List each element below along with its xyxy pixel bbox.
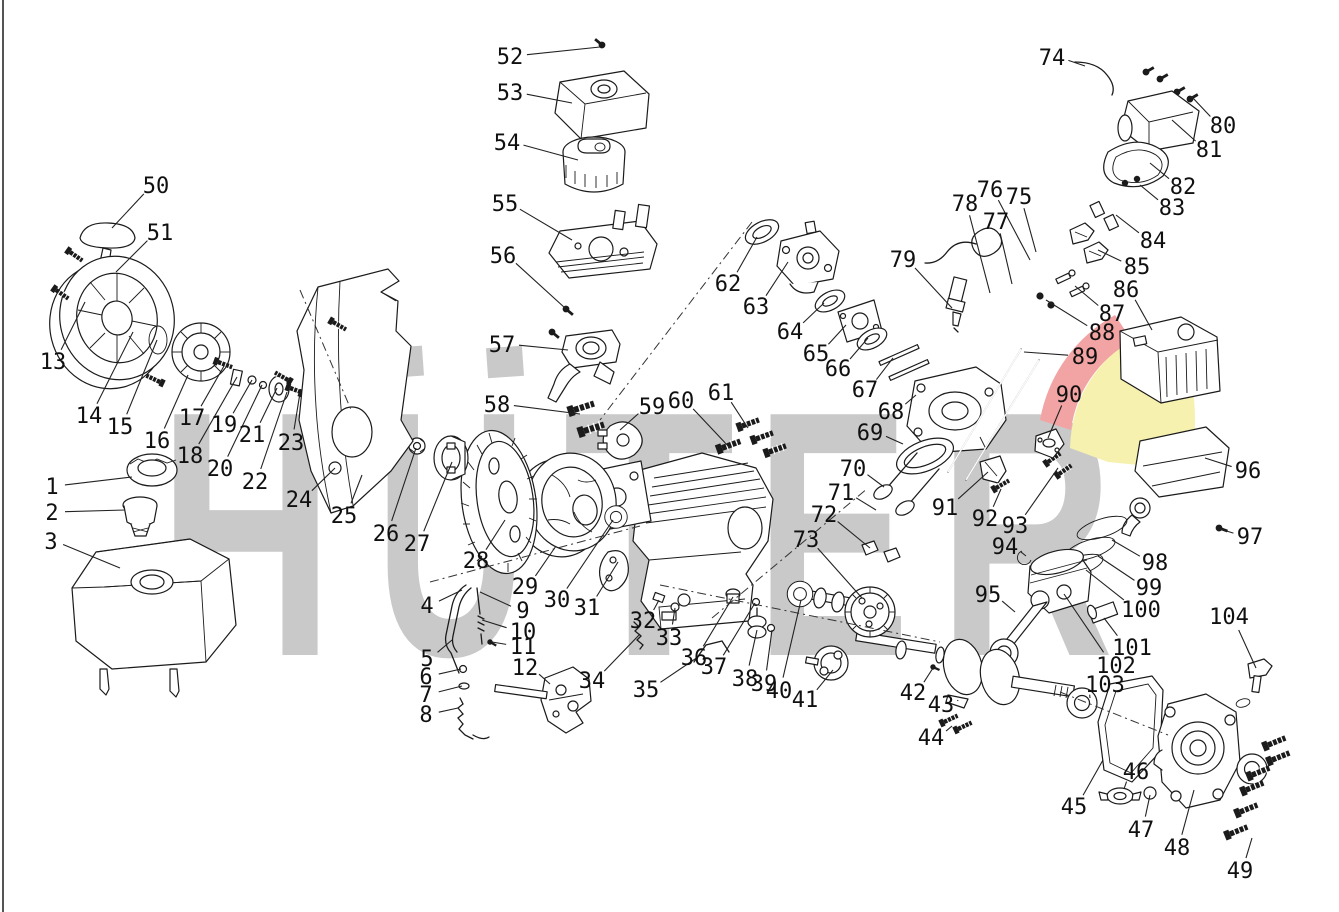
callout-27: 27 bbox=[404, 532, 431, 557]
part-crankcase-cover bbox=[1154, 694, 1240, 808]
callout-59: 59 bbox=[639, 395, 666, 420]
part-rocker-arms bbox=[1070, 223, 1108, 263]
callout-35: 35 bbox=[633, 678, 660, 703]
callout-16: 16 bbox=[144, 429, 171, 454]
callout-100: 100 bbox=[1121, 598, 1161, 623]
callout-18: 18 bbox=[177, 444, 204, 469]
leader-line-75 bbox=[1024, 208, 1036, 252]
callout-52: 52 bbox=[497, 45, 524, 70]
callout-43: 43 bbox=[928, 693, 955, 718]
callout-74: 74 bbox=[1039, 46, 1066, 71]
part-air-filter-base bbox=[549, 204, 657, 278]
leader-line-1 bbox=[65, 477, 132, 485]
part-fuel-strainer bbox=[123, 497, 157, 536]
callout-19: 19 bbox=[211, 413, 238, 438]
callout-22: 22 bbox=[242, 470, 269, 495]
callout-26: 26 bbox=[373, 522, 400, 547]
callout-61: 61 bbox=[708, 381, 735, 406]
callout-40: 40 bbox=[766, 679, 793, 704]
leader-line-98 bbox=[1112, 540, 1140, 556]
leader-line-83 bbox=[1140, 185, 1158, 200]
callout-48: 48 bbox=[1164, 836, 1191, 861]
callout-55: 55 bbox=[492, 192, 519, 217]
callout-92: 92 bbox=[972, 507, 999, 532]
part-starter-pulley bbox=[172, 323, 230, 381]
part-carburetor bbox=[777, 221, 839, 293]
callout-103: 103 bbox=[1085, 673, 1125, 698]
callout-15: 15 bbox=[107, 415, 134, 440]
part-rocker-pivots bbox=[1056, 270, 1089, 297]
callout-75: 75 bbox=[1006, 185, 1033, 210]
callout-25: 25 bbox=[331, 504, 358, 529]
callout-96: 96 bbox=[1235, 459, 1262, 484]
callout-51: 51 bbox=[147, 221, 174, 246]
callout-88: 88 bbox=[1089, 321, 1116, 346]
callout-56: 56 bbox=[490, 244, 517, 269]
callout-37: 37 bbox=[701, 655, 728, 680]
callout-21: 21 bbox=[239, 423, 266, 448]
callout-8: 8 bbox=[419, 703, 432, 728]
leader-line-64 bbox=[803, 303, 824, 323]
callout-17: 17 bbox=[179, 406, 206, 431]
callout-47: 47 bbox=[1128, 818, 1155, 843]
callout-91: 91 bbox=[932, 496, 959, 521]
callout-58: 58 bbox=[484, 393, 511, 418]
callout-98: 98 bbox=[1142, 551, 1169, 576]
callout-76: 76 bbox=[977, 178, 1004, 203]
part-cylinder-head bbox=[907, 367, 1006, 453]
callout-41: 41 bbox=[792, 688, 819, 713]
leader-line-88 bbox=[1046, 300, 1087, 326]
callout-70: 70 bbox=[840, 457, 867, 482]
callout-1: 1 bbox=[45, 475, 58, 500]
part-carb-gasket bbox=[741, 215, 782, 250]
callout-2: 2 bbox=[45, 501, 58, 526]
callout-29: 29 bbox=[512, 575, 539, 600]
part-starter-cup bbox=[434, 436, 468, 480]
callout-97: 97 bbox=[1237, 525, 1264, 550]
callout-73: 73 bbox=[793, 528, 820, 553]
callout-80: 80 bbox=[1210, 114, 1237, 139]
callout-60: 60 bbox=[668, 389, 695, 414]
leader-line-52 bbox=[527, 47, 600, 55]
callout-24: 24 bbox=[286, 488, 313, 513]
callout-33: 33 bbox=[656, 626, 683, 651]
callout-94: 94 bbox=[992, 535, 1019, 560]
leader-line-79 bbox=[915, 268, 952, 308]
part-air-filter-cover bbox=[555, 71, 649, 139]
callout-89: 89 bbox=[1072, 345, 1099, 370]
leader-line-104 bbox=[1239, 630, 1256, 668]
callout-50: 50 bbox=[143, 174, 170, 199]
part-fuel-cap bbox=[127, 454, 177, 486]
callout-78: 78 bbox=[952, 192, 979, 217]
part-bearing bbox=[605, 506, 628, 529]
callout-84: 84 bbox=[1140, 229, 1167, 254]
callout-30: 30 bbox=[544, 588, 571, 613]
leader-line-55 bbox=[520, 209, 572, 240]
exploded-diagram: HUTER bbox=[0, 0, 1339, 912]
callout-44: 44 bbox=[918, 726, 945, 751]
callout-14: 14 bbox=[76, 404, 103, 429]
exploded-diagram-page: HUTER bbox=[0, 0, 1339, 912]
callout-28: 28 bbox=[463, 549, 490, 574]
callout-69: 69 bbox=[857, 421, 884, 446]
callout-20: 20 bbox=[207, 457, 234, 482]
part-oil-sensor bbox=[1235, 659, 1272, 709]
callout-57: 57 bbox=[489, 333, 516, 358]
part-oil-filler-cap bbox=[1099, 788, 1141, 804]
callout-62: 62 bbox=[715, 272, 742, 297]
callout-79: 79 bbox=[890, 248, 917, 273]
callout-42: 42 bbox=[900, 681, 927, 706]
leader-line-45 bbox=[1083, 760, 1103, 795]
callout-104: 104 bbox=[1209, 605, 1249, 630]
callout-86: 86 bbox=[1113, 278, 1140, 303]
callout-34: 34 bbox=[579, 669, 606, 694]
callout-77: 77 bbox=[983, 210, 1010, 235]
callout-95: 95 bbox=[975, 583, 1002, 608]
leader-line-84 bbox=[1116, 215, 1139, 233]
part-tappets bbox=[1090, 201, 1119, 230]
callout-66: 66 bbox=[825, 357, 852, 382]
leader-line-63 bbox=[766, 262, 788, 296]
callout-23: 23 bbox=[278, 431, 305, 456]
callout-32: 32 bbox=[630, 609, 657, 634]
callout-81: 81 bbox=[1196, 138, 1223, 163]
callout-67: 67 bbox=[852, 378, 879, 403]
part-spark-plug bbox=[925, 228, 1002, 332]
callout-12: 12 bbox=[512, 656, 539, 681]
leader-line-50 bbox=[112, 194, 144, 228]
leader-line-74 bbox=[1068, 60, 1085, 66]
leader-line-77 bbox=[1000, 233, 1012, 284]
part-breather-tube bbox=[1075, 62, 1113, 95]
callout-3: 3 bbox=[44, 530, 57, 555]
callout-63: 63 bbox=[743, 295, 770, 320]
leader-line-56 bbox=[516, 263, 565, 308]
callout-46: 46 bbox=[1123, 760, 1150, 785]
callout-4: 4 bbox=[420, 594, 433, 619]
callout-53: 53 bbox=[497, 81, 524, 106]
callout-64: 64 bbox=[777, 320, 804, 345]
callout-49: 49 bbox=[1227, 859, 1254, 884]
callout-31: 31 bbox=[574, 596, 601, 621]
callout-13: 13 bbox=[40, 350, 67, 375]
callout-83: 83 bbox=[1159, 196, 1186, 221]
callout-85: 85 bbox=[1124, 255, 1151, 280]
leader-line-2 bbox=[65, 510, 125, 512]
leader-line-49 bbox=[1246, 838, 1252, 858]
callout-90: 90 bbox=[1056, 383, 1083, 408]
callout-54: 54 bbox=[494, 131, 521, 156]
callout-45: 45 bbox=[1061, 795, 1088, 820]
callout-72: 72 bbox=[811, 503, 838, 528]
part-air-filter-element bbox=[563, 137, 625, 192]
